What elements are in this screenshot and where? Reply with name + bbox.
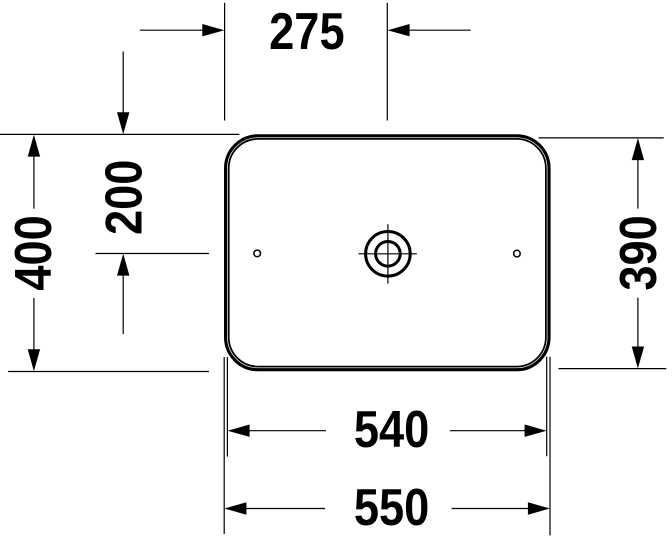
- svg-text:390: 390: [609, 215, 667, 291]
- svg-text:550: 550: [354, 478, 430, 536]
- svg-text:540: 540: [354, 400, 430, 458]
- svg-text:200: 200: [94, 160, 152, 236]
- svg-text:275: 275: [269, 2, 345, 60]
- svg-text:400: 400: [4, 215, 62, 291]
